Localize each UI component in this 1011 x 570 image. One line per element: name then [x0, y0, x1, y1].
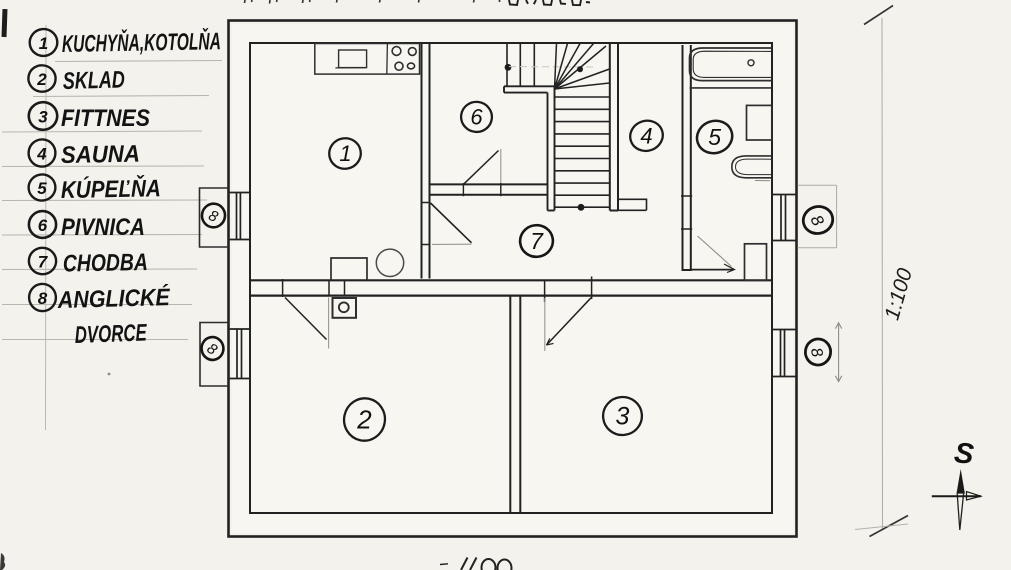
svg-text:4: 4	[36, 145, 47, 164]
svg-text:3: 3	[616, 403, 630, 431]
svg-text:KUCHYŇA,KOTOLŇA: KUCHYŇA,KOTOLŇA	[62, 27, 221, 58]
svg-text:6: 6	[38, 216, 48, 235]
svg-text:1: 1	[339, 141, 351, 166]
svg-text:2: 2	[356, 405, 372, 435]
svg-text:ANGLICKÉ: ANGLICKÉ	[57, 283, 171, 314]
svg-text:DVORCE: DVORCE	[74, 319, 148, 349]
svg-text:1: 1	[39, 34, 48, 53]
svg-text:7: 7	[38, 253, 49, 272]
svg-text:5: 5	[37, 179, 47, 198]
svg-text:KÚPEĽŇA: KÚPEĽŇA	[61, 174, 161, 204]
svg-text:8: 8	[38, 289, 48, 308]
svg-text:2: 2	[36, 70, 47, 89]
svg-text:4: 4	[640, 124, 652, 149]
svg-text:PIVNICA: PIVNICA	[61, 214, 145, 241]
svg-text:SKLAD: SKLAD	[62, 66, 125, 95]
svg-text:FITTNES: FITTNES	[61, 105, 150, 132]
svg-text:3: 3	[38, 108, 48, 127]
svg-text:5: 5	[708, 124, 721, 150]
svg-text:7: 7	[530, 228, 544, 254]
svg-text:CHODBA: CHODBA	[63, 249, 148, 277]
svg-text:S: S	[953, 437, 976, 471]
svg-text:SAUNA: SAUNA	[61, 141, 140, 169]
svg-text:6: 6	[470, 105, 483, 130]
